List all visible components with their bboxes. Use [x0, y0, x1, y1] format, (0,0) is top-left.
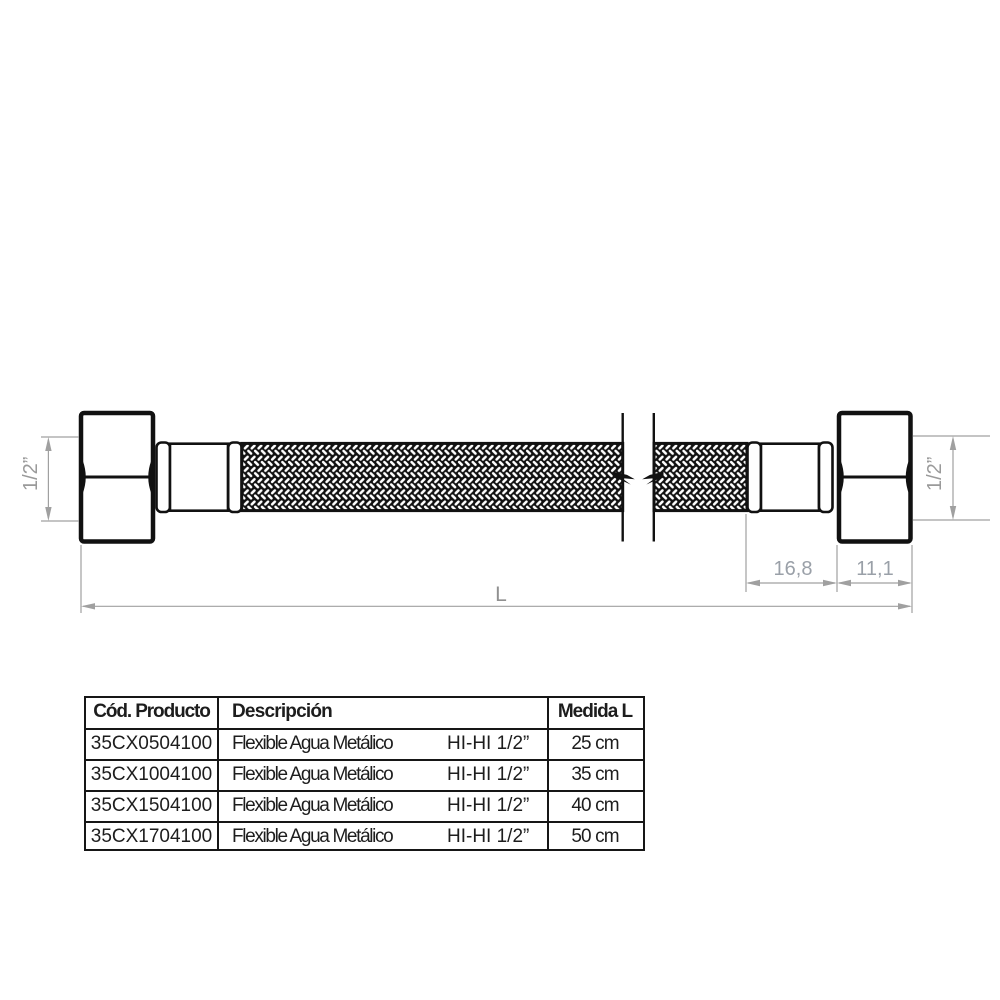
svg-text:1/2”: 1/2” — [924, 457, 946, 491]
svg-text:L: L — [495, 583, 507, 606]
svg-text:1/2”: 1/2” — [20, 457, 42, 491]
svg-text:16,8: 16,8 — [774, 558, 813, 580]
svg-text:11,1: 11,1 — [856, 558, 893, 580]
